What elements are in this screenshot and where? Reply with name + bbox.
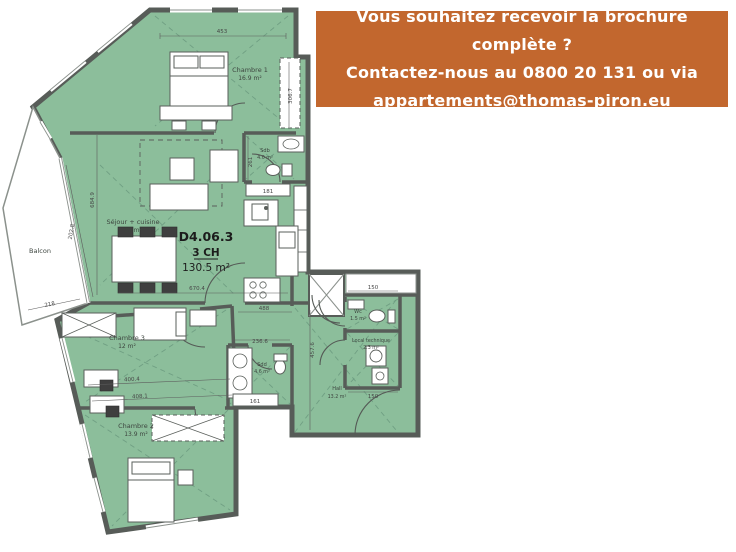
bed-chambre1-icon <box>160 52 232 130</box>
dim-chambre1-height: 306.7 <box>288 88 294 104</box>
dim-local-width: 150 <box>368 394 379 400</box>
room-label-chambre2: Chambre 2 <box>118 422 154 430</box>
dim-wc-width: 150 <box>368 285 379 291</box>
screenshot-root: Chambre 1 16.9 m² Séjour + cuisine 39 m²… <box>0 0 736 552</box>
room-label-chambre3: Chambre 3 <box>109 334 145 342</box>
banner-email: appartements@thomas-piron.eu <box>373 87 671 115</box>
room-label-sejour: Séjour + cuisine <box>106 218 159 226</box>
dim-chambre3-width-a: 400.4 <box>124 377 141 384</box>
unit-code: D4.06.3 <box>179 229 234 244</box>
banner-line-1: Vous souhaitez recevoir la brochure comp… <box>316 3 728 59</box>
room-area-sdd: 4.6 m² <box>254 369 270 375</box>
dim-sdb-height: 261 <box>248 157 254 168</box>
dim-hall-height: 457.6 <box>310 342 316 358</box>
room-area-chambre2: 13.9 m² <box>124 431 148 438</box>
room-label-chambre1: Chambre 1 <box>232 66 268 74</box>
dim-top-width: 453 <box>217 29 228 35</box>
unit-total-area: 130.5 m² <box>182 262 230 274</box>
landing <box>346 274 416 293</box>
room-label-local-technique: Local technique <box>352 338 390 344</box>
room-label-sdd: Sdd <box>257 362 267 368</box>
room-area-local-technique: 2.3 m² <box>363 345 379 351</box>
dim-sejour-width: 670.4 <box>189 286 205 292</box>
banner-line-2: Contactez-nous au 0800 20 131 ou via <box>346 59 698 87</box>
unit-bedroom-count: 3 CH <box>192 247 219 259</box>
dim-sejour-height: 684.9 <box>90 192 96 208</box>
room-area-chambre3: 12 m² <box>118 343 136 350</box>
room-label-hall: Hall <box>332 386 342 392</box>
dim-sdd-door: 161 <box>250 399 261 405</box>
room-label-sdb: Sdb <box>260 148 270 154</box>
dim-chambre3-width-b: 408.1 <box>132 394 148 401</box>
dim-sdd-width: 236.6 <box>252 339 268 345</box>
room-label-balcon: Balcon <box>29 247 51 255</box>
dim-corridor-width: 488 <box>259 306 270 312</box>
room-area-hall: 13.2 m² <box>328 394 347 400</box>
dining-table-icon <box>112 227 177 293</box>
room-area-wc: 1.5 m² <box>350 316 366 322</box>
room-label-wc: Wc <box>354 309 362 315</box>
dim-sdb-door: 181 <box>263 189 274 195</box>
room-area-sdb: 4.0 m² <box>257 155 273 161</box>
room-area-chambre1: 16.9 m² <box>238 75 262 82</box>
room-area-sejour: 39 m² <box>124 227 142 234</box>
brochure-banner: Vous souhaitez recevoir la brochure comp… <box>316 11 728 107</box>
